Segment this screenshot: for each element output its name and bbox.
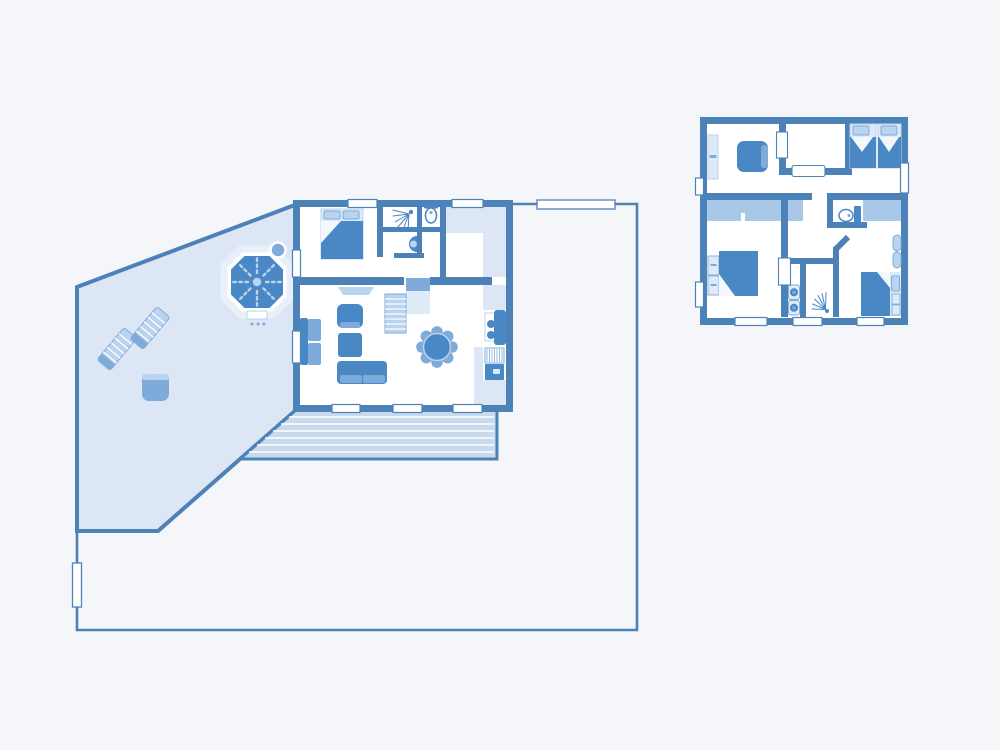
double-bed (321, 209, 363, 259)
wall-shelf (708, 135, 718, 179)
pillow (892, 276, 900, 291)
upper-floor-plan (696, 121, 909, 326)
pillow (343, 211, 359, 219)
garden-gate-top (537, 200, 615, 209)
dryer (789, 301, 800, 316)
dining-table (416, 326, 458, 368)
coffee-table (338, 333, 362, 357)
floorplan-canvas (0, 0, 1000, 750)
double-bed (719, 251, 758, 296)
stairwell-opening (792, 166, 825, 177)
twin-bed (878, 124, 901, 168)
two-seat-sofa (337, 361, 387, 384)
sideboard (338, 287, 374, 295)
drainer (485, 348, 504, 363)
single-bed (861, 272, 901, 316)
fridge (494, 310, 506, 345)
garden-stool (142, 374, 169, 401)
garden-gate-left (73, 563, 82, 607)
burner (487, 320, 495, 328)
armchair (337, 304, 363, 328)
twin-bed (850, 124, 876, 168)
pillow (881, 126, 897, 135)
toilet-icon (424, 203, 438, 223)
pillow (853, 126, 869, 135)
pillow (324, 211, 340, 219)
hot-tub-heater (271, 243, 286, 258)
washing-machine (789, 285, 800, 300)
door (779, 258, 791, 285)
armchair (737, 141, 768, 172)
burner (487, 331, 495, 339)
kitchen-sink (485, 364, 504, 380)
door (777, 132, 788, 158)
hot-tub-drain (253, 278, 261, 286)
